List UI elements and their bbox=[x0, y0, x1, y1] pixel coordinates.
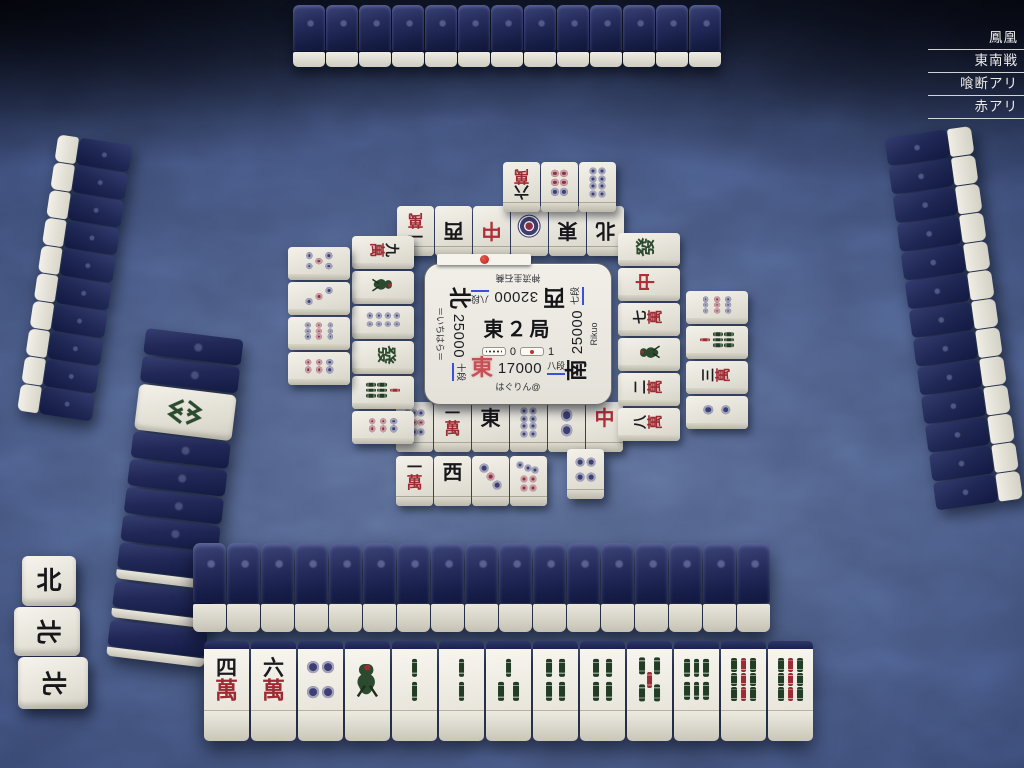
discard-tile-E: 東 bbox=[472, 402, 509, 452]
riichi-stick-icon bbox=[520, 347, 544, 356]
discard-tile-2p bbox=[548, 402, 585, 452]
discard-tile-8p bbox=[510, 402, 547, 452]
hand-tile-5s[interactable] bbox=[627, 641, 672, 741]
top-rank-link[interactable]: 八段 bbox=[471, 290, 489, 303]
tile-back bbox=[590, 5, 622, 67]
discard-tile-6m: 六萬 bbox=[503, 162, 540, 212]
discard-tile-1p bbox=[511, 206, 548, 256]
discard-tile-W: 西 bbox=[434, 456, 471, 506]
bottom-score: 17000 bbox=[498, 360, 542, 377]
ruleset-panel: 鳳凰 東南戦 喰断アリ 赤アリ bbox=[928, 27, 1024, 119]
discard-tile-8p bbox=[352, 306, 414, 339]
discard-tile-3p bbox=[472, 456, 509, 506]
bottom-rank-link[interactable]: 八段 bbox=[547, 361, 565, 374]
hand-tile-3s[interactable] bbox=[486, 641, 531, 741]
tile-back bbox=[524, 5, 556, 67]
hand-tile-9s[interactable] bbox=[721, 641, 766, 741]
wall-stack bbox=[533, 543, 566, 632]
score-panel: 西 32000 八段 神流圭石蕎 北 25000 十段 ＝いちはら＝ 南 bbox=[424, 263, 612, 405]
discard-tile-7m: 七萬 bbox=[618, 303, 680, 336]
wall-stack bbox=[397, 543, 430, 632]
discard-tile-1m: 一萬 bbox=[396, 456, 433, 506]
ruleset-kuitan: 喰断アリ bbox=[928, 73, 1024, 96]
discard-tile-6p bbox=[541, 162, 578, 212]
left-seat-wind: 北 bbox=[448, 287, 470, 309]
discard-tile-9p bbox=[288, 317, 350, 350]
discard-tile-E: 東 bbox=[549, 206, 586, 256]
hand-tile-4s[interactable] bbox=[533, 641, 578, 741]
hand-tile-6s[interactable] bbox=[674, 641, 719, 741]
north-pon-meld: 北北北 bbox=[8, 556, 104, 716]
right-player-discards-row2: 三萬 bbox=[686, 291, 748, 429]
tile-back bbox=[689, 5, 721, 67]
wall-stack bbox=[329, 543, 362, 632]
tile-back bbox=[458, 5, 490, 67]
bottom-player-name: はぐりん@ bbox=[445, 380, 591, 393]
bottom-player-discards-row2: 一萬西 bbox=[396, 456, 547, 506]
discard-tile-8m: 八萬 bbox=[618, 408, 680, 441]
wall-stack bbox=[703, 543, 736, 632]
bottom-wall bbox=[193, 543, 770, 632]
wall-stack bbox=[227, 543, 260, 632]
wall-stack bbox=[431, 543, 464, 632]
discard-tile-2p bbox=[686, 396, 748, 429]
tile-back bbox=[425, 5, 457, 67]
discard-tile-7s bbox=[686, 326, 748, 359]
tile-back bbox=[293, 5, 325, 67]
discard-tile-5p bbox=[288, 247, 350, 280]
discard-tile-F: 發 bbox=[618, 233, 680, 266]
discard-tile-C: 中 bbox=[618, 268, 680, 301]
wall-stack bbox=[363, 543, 396, 632]
wall-stack bbox=[193, 543, 226, 632]
hand-tile-6m[interactable]: 六萬 bbox=[251, 641, 296, 741]
tile-back bbox=[623, 5, 655, 67]
wall-stack bbox=[261, 543, 294, 632]
hand-tile-4s[interactable] bbox=[580, 641, 625, 741]
discard-tile-6p bbox=[352, 411, 414, 444]
discard-tile-3p bbox=[288, 282, 350, 315]
hundred-stick-count: 0 bbox=[510, 346, 516, 358]
discard-tile-7s bbox=[352, 376, 414, 409]
left-player-discards-row2 bbox=[288, 247, 350, 385]
discard-tile-2m: 二萬 bbox=[618, 373, 680, 406]
tile-back bbox=[656, 5, 688, 67]
right-player-discards-row1: 發中七萬二萬八萬 bbox=[618, 233, 680, 441]
ruleset-aka: 赤アリ bbox=[928, 96, 1024, 119]
turn-indicator bbox=[437, 254, 531, 265]
discard-tile-1m: 一萬 bbox=[434, 402, 471, 452]
my-hand: 四萬六萬 bbox=[204, 641, 813, 741]
tile-back bbox=[392, 5, 424, 67]
discard-tile-9m: 九萬 bbox=[352, 236, 414, 269]
hand-tile-4p[interactable] bbox=[298, 641, 343, 741]
top-player-hand bbox=[293, 5, 721, 67]
tile-back bbox=[491, 5, 523, 67]
discard-tile-8p bbox=[579, 162, 616, 212]
right-score: 25000 bbox=[569, 310, 586, 354]
bottom-player-info: 東 17000 八段 はぐりん@ bbox=[445, 357, 591, 399]
top-seat-wind: 西 bbox=[543, 286, 565, 308]
wall-stack bbox=[737, 543, 770, 632]
hand-tile-2s[interactable] bbox=[392, 641, 437, 741]
discard-tile-6p bbox=[288, 352, 350, 385]
turn-indicator-dot bbox=[480, 255, 489, 264]
top-player-discards-row1: 一萬西中東北 bbox=[397, 206, 624, 256]
hand-tile-2s[interactable] bbox=[439, 641, 484, 741]
round-label: 東２局 bbox=[484, 313, 553, 342]
round-info: 東２局 0 1 bbox=[467, 309, 569, 361]
meld-tile-N: 北 bbox=[18, 657, 88, 709]
ruleset-match-type: 東南戦 bbox=[928, 50, 1024, 73]
discard-tile-W: 西 bbox=[435, 206, 472, 256]
tile-back bbox=[557, 5, 589, 67]
hundred-stick-icon bbox=[482, 347, 506, 356]
right-rank-link[interactable]: 七段 bbox=[570, 287, 583, 305]
hand-tile-1s[interactable] bbox=[345, 641, 390, 741]
top-score: 32000 bbox=[494, 289, 538, 306]
wall-stack bbox=[669, 543, 702, 632]
meld-tile-N: 北 bbox=[14, 607, 80, 656]
discard-tile-C: 中 bbox=[473, 206, 510, 256]
tile-back bbox=[359, 5, 391, 67]
top-player-discards-row2: 六萬 bbox=[503, 162, 616, 212]
wall-stack bbox=[295, 543, 328, 632]
discard-tile-F: 發 bbox=[352, 341, 414, 374]
ruleset-lobby: 鳳凰 bbox=[928, 27, 1024, 50]
discard-tile-9p bbox=[686, 291, 748, 324]
wall-stack bbox=[499, 543, 532, 632]
discard-tile-3m: 三萬 bbox=[686, 361, 748, 394]
discard-tile-1s bbox=[618, 338, 680, 371]
wall-stack bbox=[567, 543, 600, 632]
wall-stack bbox=[465, 543, 498, 632]
discard-tile-4p bbox=[567, 449, 604, 499]
left-player-discards-row1: 九萬發 bbox=[352, 236, 414, 444]
table-sticks: 0 1 bbox=[482, 346, 554, 358]
discard-tile-7p bbox=[510, 456, 547, 506]
left-score: 25000 bbox=[451, 314, 468, 358]
wall-stack bbox=[601, 543, 634, 632]
wall-stack bbox=[635, 543, 668, 632]
discard-tile-1s bbox=[352, 271, 414, 304]
latest-discard bbox=[567, 449, 604, 499]
hand-tile-9s[interactable] bbox=[768, 641, 813, 741]
meld-tile-N-called: 北 bbox=[22, 556, 76, 606]
mahjong-table: 鳳凰 東南戦 喰断アリ 赤アリ 一萬西中東北 六萬 一萬東中 一萬西 九萬發 發… bbox=[0, 0, 1024, 768]
hand-tile-4m[interactable]: 四萬 bbox=[204, 641, 249, 741]
tile-back bbox=[326, 5, 358, 67]
bottom-player-discards-row1: 一萬東中 bbox=[396, 402, 623, 452]
riichi-stick-count: 1 bbox=[548, 346, 554, 358]
